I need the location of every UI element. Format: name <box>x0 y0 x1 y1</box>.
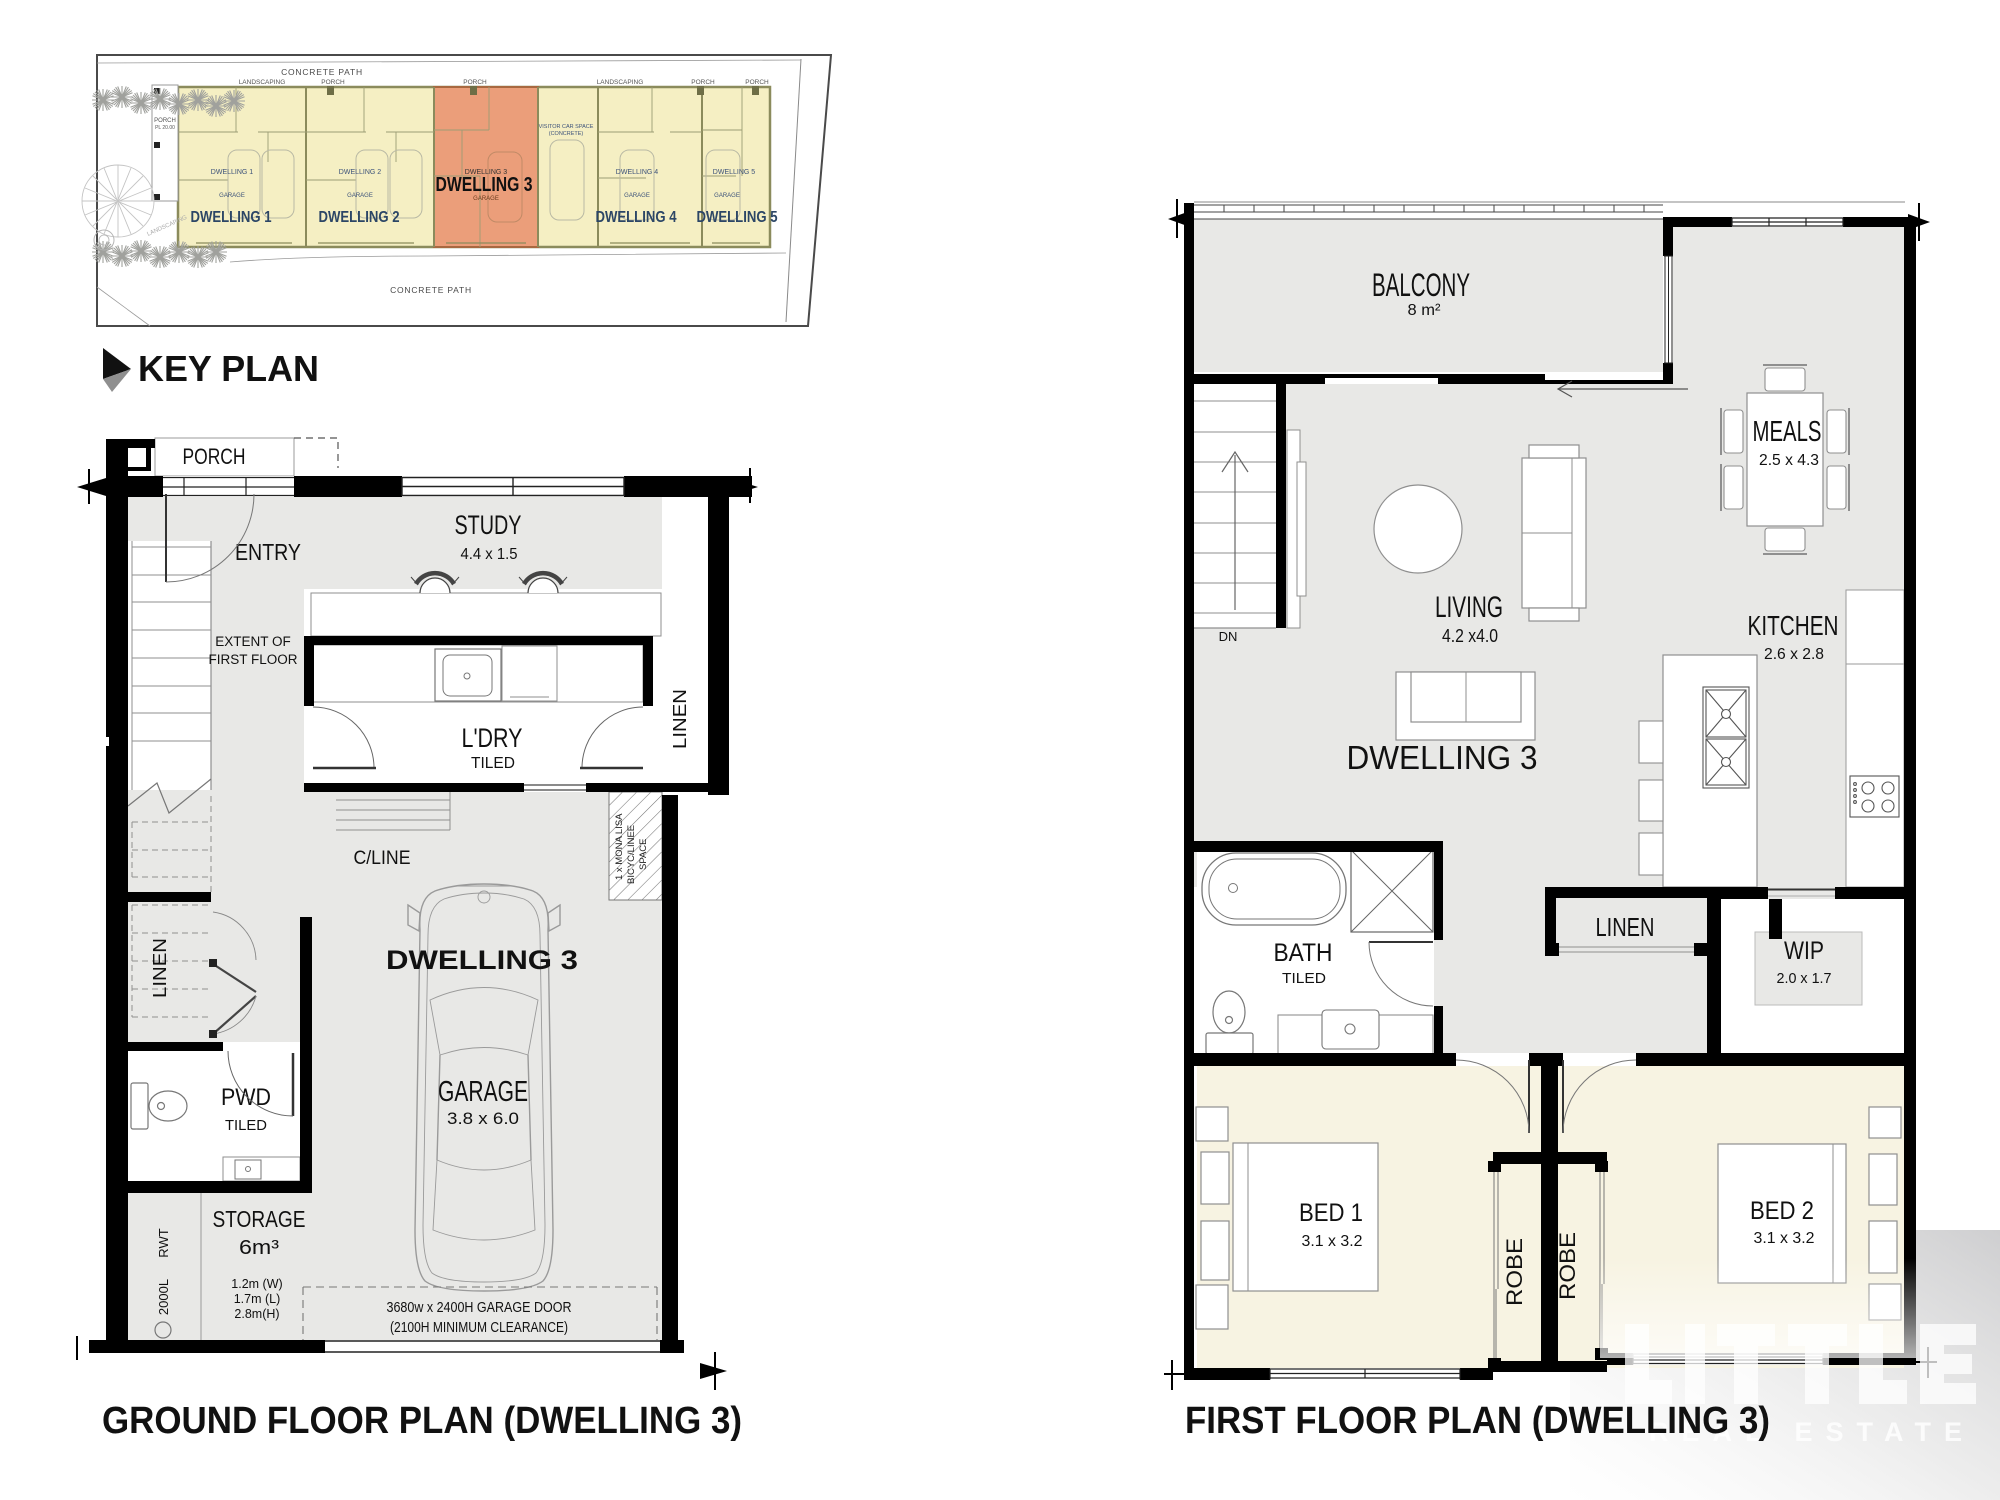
svg-text:L'DRY: L'DRY <box>462 723 523 753</box>
svg-text:DWELLING 4: DWELLING 4 <box>616 169 659 176</box>
svg-text:VISITOR CAR SPACE: VISITOR CAR SPACE <box>539 124 594 130</box>
svg-text:GARAGE: GARAGE <box>473 196 499 202</box>
svg-text:WIP: WIP <box>1784 937 1824 965</box>
svg-text:FIRST FLOOR: FIRST FLOOR <box>208 652 297 667</box>
svg-text:DWELLING 1: DWELLING 1 <box>191 209 272 226</box>
svg-text:2.5 x 4.3: 2.5 x 4.3 <box>1759 452 1819 469</box>
svg-text:ROBE: ROBE <box>1502 1238 1527 1306</box>
svg-text:RWT: RWT <box>156 1228 171 1257</box>
svg-text:2.8m(H): 2.8m(H) <box>234 1307 279 1321</box>
svg-text:FIRST FLOOR PLAN (DWELLING 3): FIRST FLOOR PLAN (DWELLING 3) <box>1185 1400 1770 1442</box>
svg-text:KEY PLAN: KEY PLAN <box>138 348 319 389</box>
svg-text:1.2m (W): 1.2m (W) <box>231 1277 282 1291</box>
svg-text:GARAGE: GARAGE <box>714 193 740 199</box>
svg-text:PL 20.00: PL 20.00 <box>155 125 175 131</box>
svg-text:BATH: BATH <box>1274 939 1333 967</box>
svg-text:3.1 x 3.2: 3.1 x 3.2 <box>1754 1230 1815 1247</box>
svg-text:DWELLING 4: DWELLING 4 <box>596 209 677 226</box>
svg-text:2.0 x 1.7: 2.0 x 1.7 <box>1777 970 1832 987</box>
svg-text:2000L: 2000L <box>156 1279 171 1315</box>
svg-text:DWELLING 2: DWELLING 2 <box>339 169 382 176</box>
svg-text:DWELLING 5: DWELLING 5 <box>713 169 756 176</box>
svg-text:ROBE: ROBE <box>1555 1232 1580 1300</box>
svg-text:EXTENT OF: EXTENT OF <box>215 634 291 649</box>
svg-text:PORCH: PORCH <box>154 118 176 124</box>
svg-text:LINEN: LINEN <box>1596 912 1655 942</box>
svg-text:CONCRETE PATH: CONCRETE PATH <box>281 67 363 77</box>
svg-text:STUDY: STUDY <box>455 510 522 540</box>
svg-text:BALCONY: BALCONY <box>1372 267 1470 303</box>
svg-text:GARAGE: GARAGE <box>624 193 650 199</box>
svg-text:PORCH: PORCH <box>321 79 345 86</box>
svg-text:LINEN: LINEN <box>670 689 690 749</box>
svg-text:DWELLING 2: DWELLING 2 <box>319 209 400 226</box>
svg-text:LANDSCAPING: LANDSCAPING <box>239 79 286 86</box>
svg-text:(CONCRETE): (CONCRETE) <box>549 131 584 137</box>
svg-text:TILED: TILED <box>471 755 515 772</box>
svg-text:BED 1: BED 1 <box>1299 1199 1363 1227</box>
svg-text:PORCH: PORCH <box>183 444 246 469</box>
svg-text:BICYC/LINEE: BICYC/LINEE <box>626 825 637 884</box>
svg-text:2.6 x 2.8: 2.6 x 2.8 <box>1764 646 1824 663</box>
svg-text:LIVING: LIVING <box>1435 591 1503 624</box>
svg-text:1.7m (L): 1.7m (L) <box>234 1292 281 1306</box>
svg-text:4.4 x 1.5: 4.4 x 1.5 <box>461 546 518 563</box>
svg-text:PORCH: PORCH <box>691 79 715 86</box>
svg-text:MEALS: MEALS <box>1753 416 1822 448</box>
svg-text:STORAGE: STORAGE <box>213 1206 306 1232</box>
svg-text:CONCRETE PATH: CONCRETE PATH <box>390 285 472 295</box>
svg-text:8 m²: 8 m² <box>1408 302 1442 319</box>
svg-text:1 x MONA LISA: 1 x MONA LISA <box>614 813 625 880</box>
svg-text:TILED: TILED <box>225 1117 267 1134</box>
svg-text:6m³: 6m³ <box>239 1237 279 1259</box>
svg-text:DWELLING 1: DWELLING 1 <box>211 169 254 176</box>
svg-text:ENTRY: ENTRY <box>235 539 301 565</box>
svg-text:DWELLING 3: DWELLING 3 <box>465 169 508 176</box>
svg-text:GARAGE: GARAGE <box>219 193 245 199</box>
svg-text:3.8 x 6.0: 3.8 x 6.0 <box>447 1109 519 1128</box>
svg-text:DWELLING 3: DWELLING 3 <box>1347 739 1538 776</box>
svg-text:LANDSCAPING: LANDSCAPING <box>597 79 644 86</box>
svg-text:C/LINE: C/LINE <box>354 848 411 869</box>
svg-text:KITCHEN: KITCHEN <box>1748 610 1839 641</box>
svg-text:DN: DN <box>1219 629 1238 644</box>
svg-text:BED 2: BED 2 <box>1750 1197 1814 1225</box>
svg-text:DWELLING 3: DWELLING 3 <box>386 945 578 975</box>
svg-text:PWD: PWD <box>221 1084 271 1111</box>
svg-text:(2100H MINIMUM CLEARANCE): (2100H MINIMUM CLEARANCE) <box>390 1320 568 1336</box>
svg-text:4.2 x4.0: 4.2 x4.0 <box>1442 626 1498 646</box>
svg-text:SPACE: SPACE <box>638 838 649 870</box>
svg-text:3.1 x 3.2: 3.1 x 3.2 <box>1302 1233 1363 1250</box>
svg-text:GARAGE: GARAGE <box>438 1076 528 1108</box>
svg-text:PORCH: PORCH <box>463 79 487 86</box>
svg-text:LINEN: LINEN <box>150 938 170 998</box>
svg-text:PORCH: PORCH <box>745 79 769 86</box>
svg-text:3680w x 2400H GARAGE DOOR: 3680w x 2400H GARAGE DOOR <box>387 1300 572 1316</box>
svg-text:DWELLING 3: DWELLING 3 <box>436 174 533 196</box>
svg-text:GARAGE: GARAGE <box>347 193 373 199</box>
svg-text:GROUND FLOOR PLAN (DWELLING 3): GROUND FLOOR PLAN (DWELLING 3) <box>102 1400 742 1442</box>
svg-text:TILED: TILED <box>1282 970 1326 987</box>
svg-text:DWELLING 5: DWELLING 5 <box>697 209 778 226</box>
